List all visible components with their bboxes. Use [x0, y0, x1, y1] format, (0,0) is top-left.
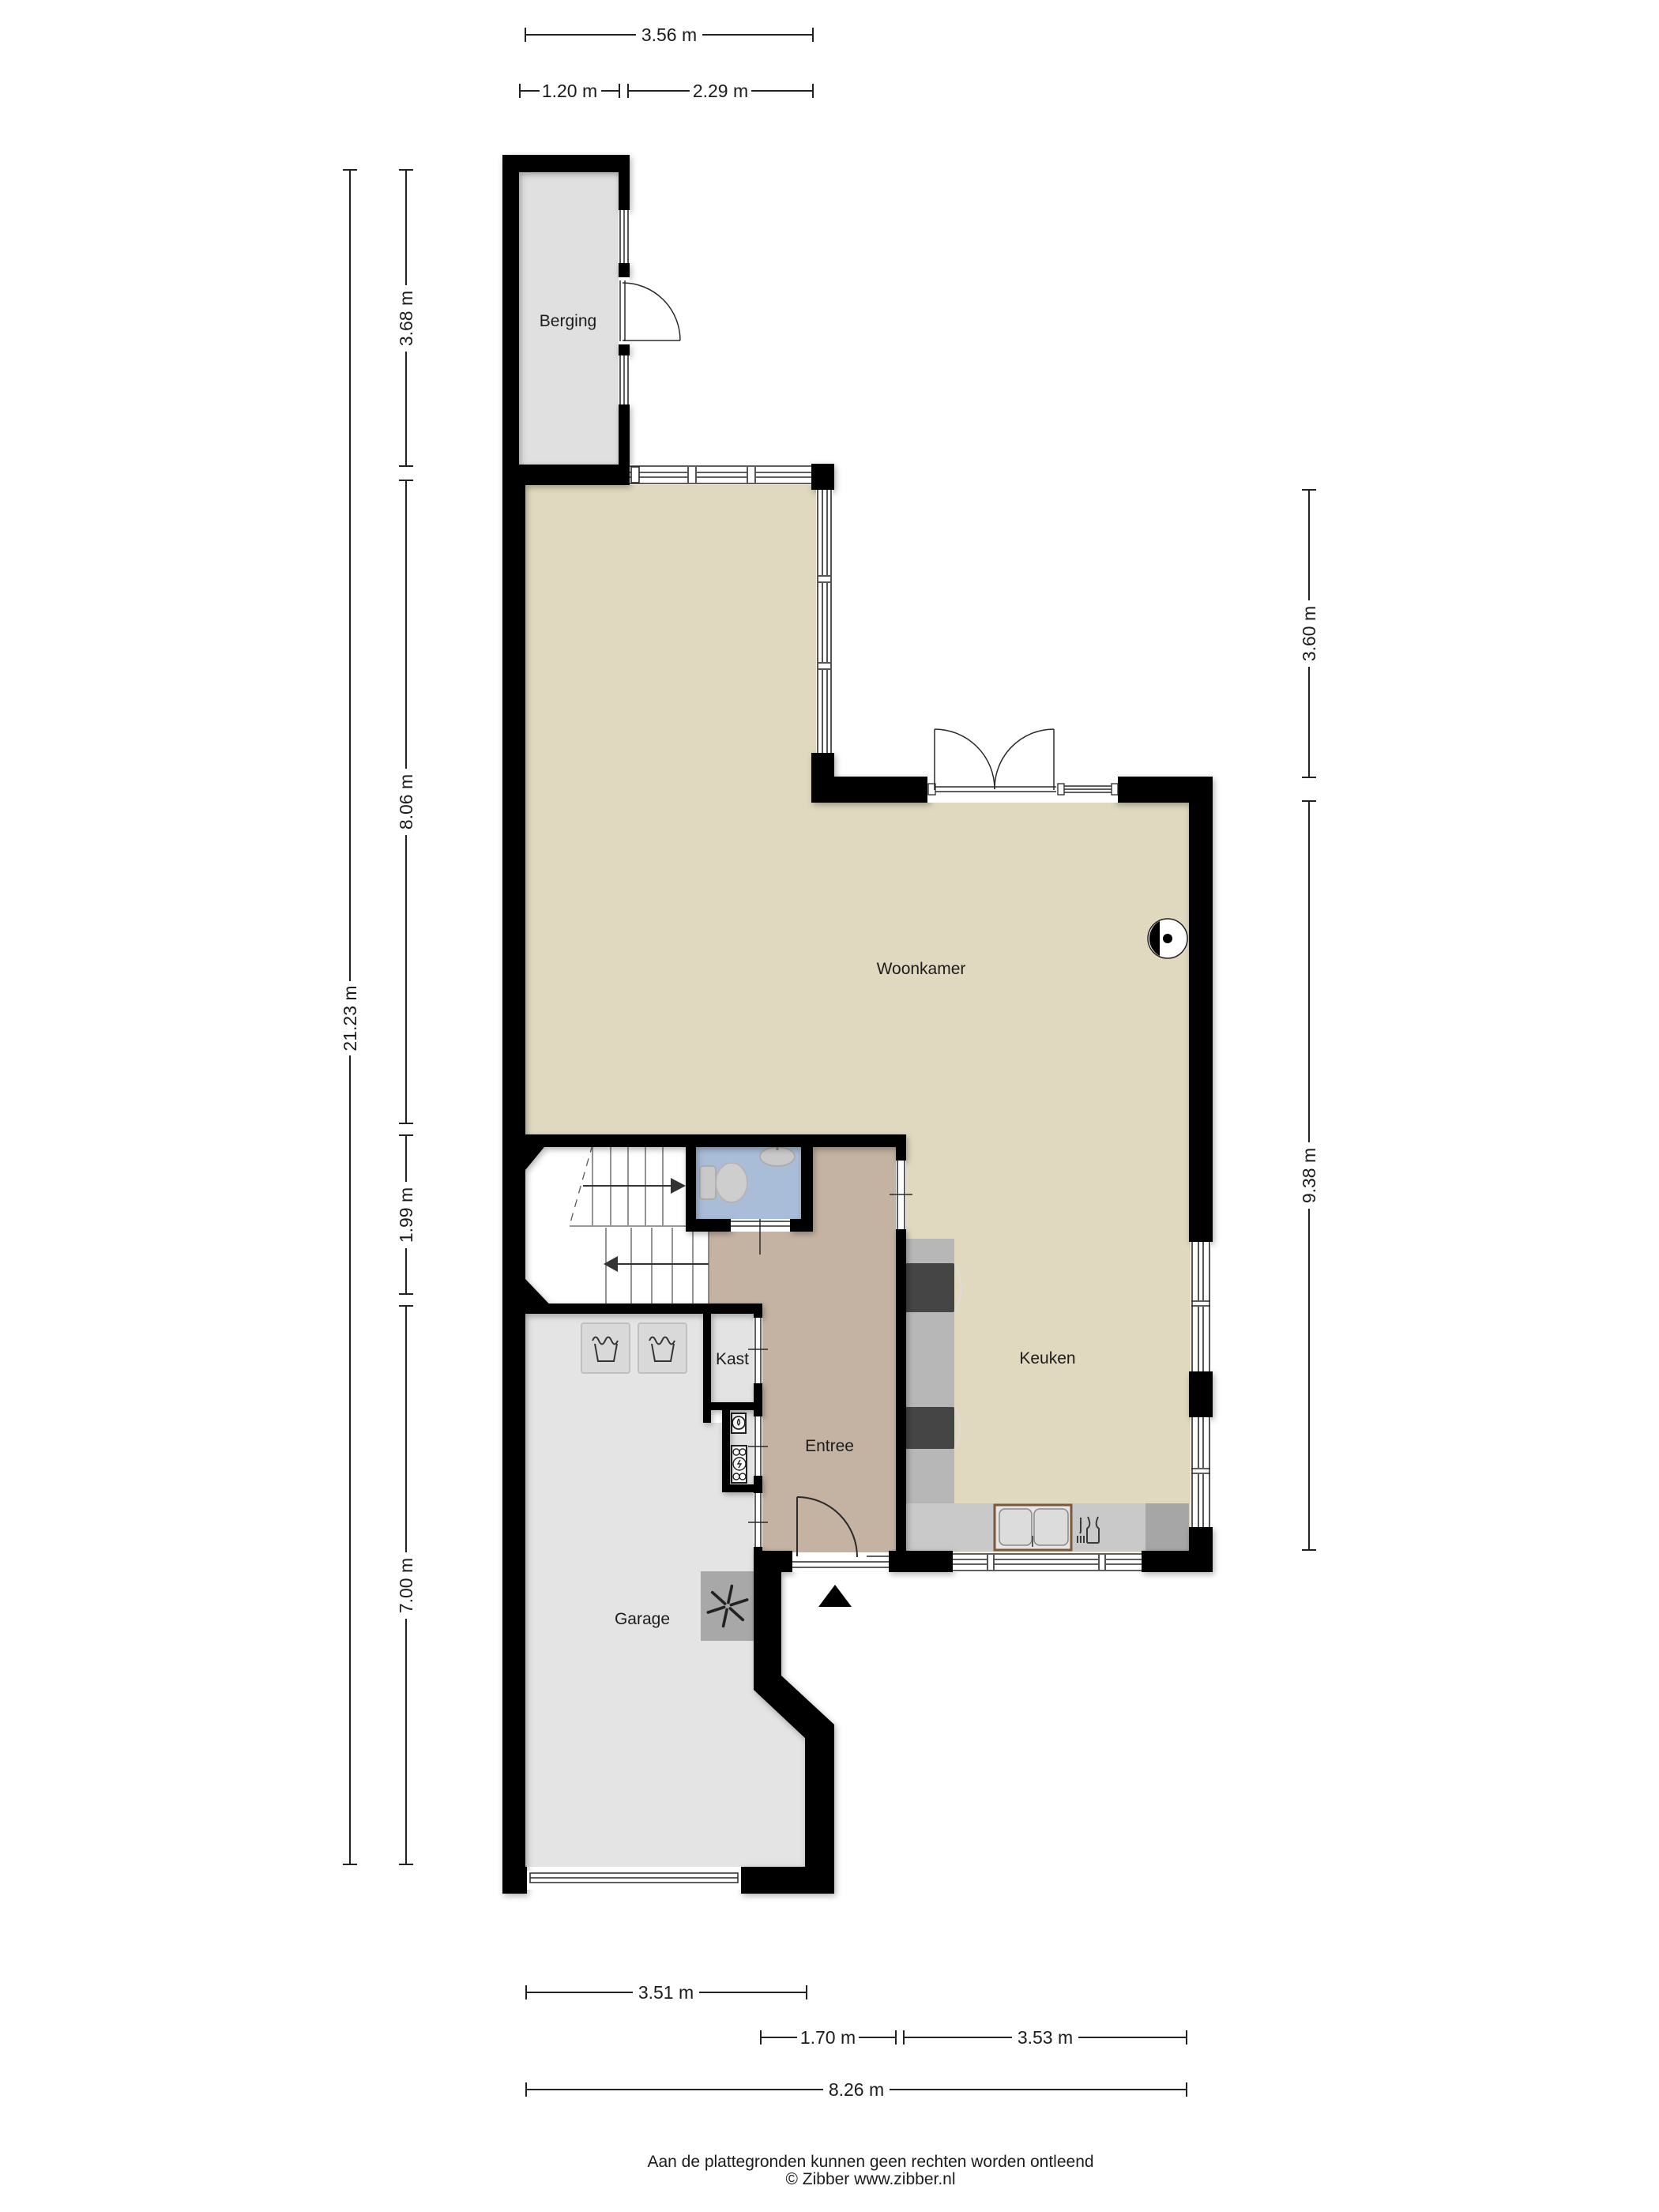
- svg-text:Woonkamer: Woonkamer: [877, 960, 966, 978]
- svg-text:21.23 m: 21.23 m: [340, 985, 360, 1051]
- svg-text:Berging: Berging: [540, 312, 596, 330]
- svg-text:1.20 m: 1.20 m: [542, 81, 597, 101]
- svg-text:1.70 m: 1.70 m: [800, 2027, 856, 2048]
- svg-text:3.56 m: 3.56 m: [641, 24, 697, 45]
- svg-text:Garage: Garage: [615, 1610, 670, 1628]
- svg-text:8.26 m: 8.26 m: [829, 2079, 884, 2100]
- svg-text:3.68 m: 3.68 m: [396, 291, 416, 346]
- svg-text:7.00 m: 7.00 m: [396, 1558, 416, 1613]
- svg-text:9.38 m: 9.38 m: [1299, 1148, 1319, 1203]
- svg-text:Keuken: Keuken: [1019, 1349, 1075, 1367]
- svg-text:2.29 m: 2.29 m: [693, 81, 748, 101]
- svg-text:Entree: Entree: [805, 1437, 854, 1455]
- svg-text:8.06 m: 8.06 m: [396, 774, 416, 829]
- svg-text:1.99 m: 1.99 m: [396, 1187, 416, 1243]
- svg-text:Kast: Kast: [716, 1350, 749, 1368]
- svg-text:3.51 m: 3.51 m: [638, 1982, 694, 2003]
- svg-text:3.53 m: 3.53 m: [1018, 2027, 1073, 2048]
- svg-text:© Zibber www.zibber.nl: © Zibber www.zibber.nl: [785, 2170, 955, 2188]
- svg-text:3.60 m: 3.60 m: [1299, 606, 1319, 661]
- svg-text:Aan de plattegronden kunnen ge: Aan de plattegronden kunnen geen rechten…: [647, 2153, 1093, 2171]
